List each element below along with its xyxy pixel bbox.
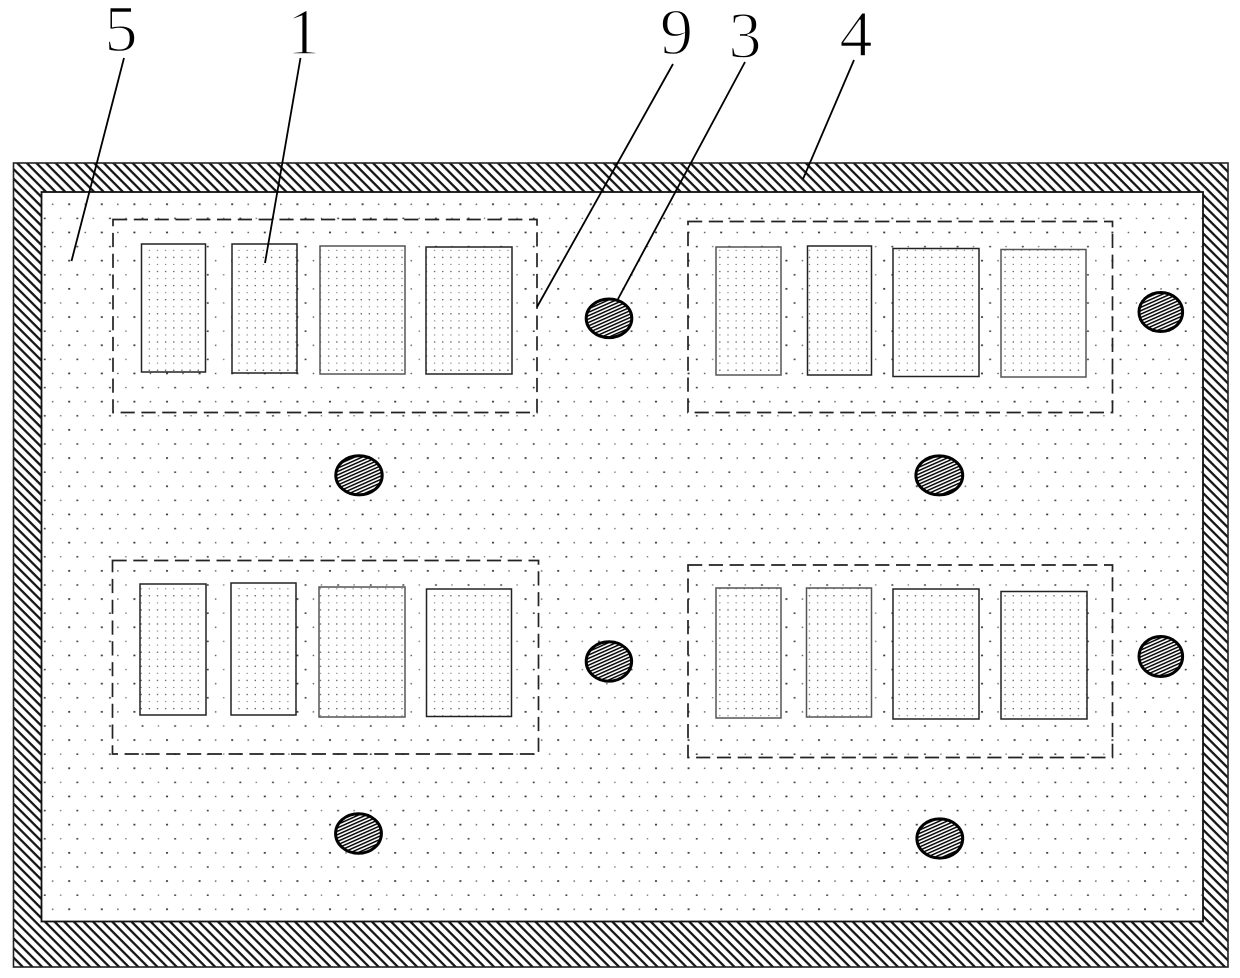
svg-text:1: 1 (287, 0, 320, 69)
svg-text:4: 4 (840, 0, 873, 71)
svg-text:5: 5 (105, 0, 138, 66)
svg-text:3: 3 (729, 0, 762, 73)
svg-text:9: 9 (660, 0, 693, 69)
